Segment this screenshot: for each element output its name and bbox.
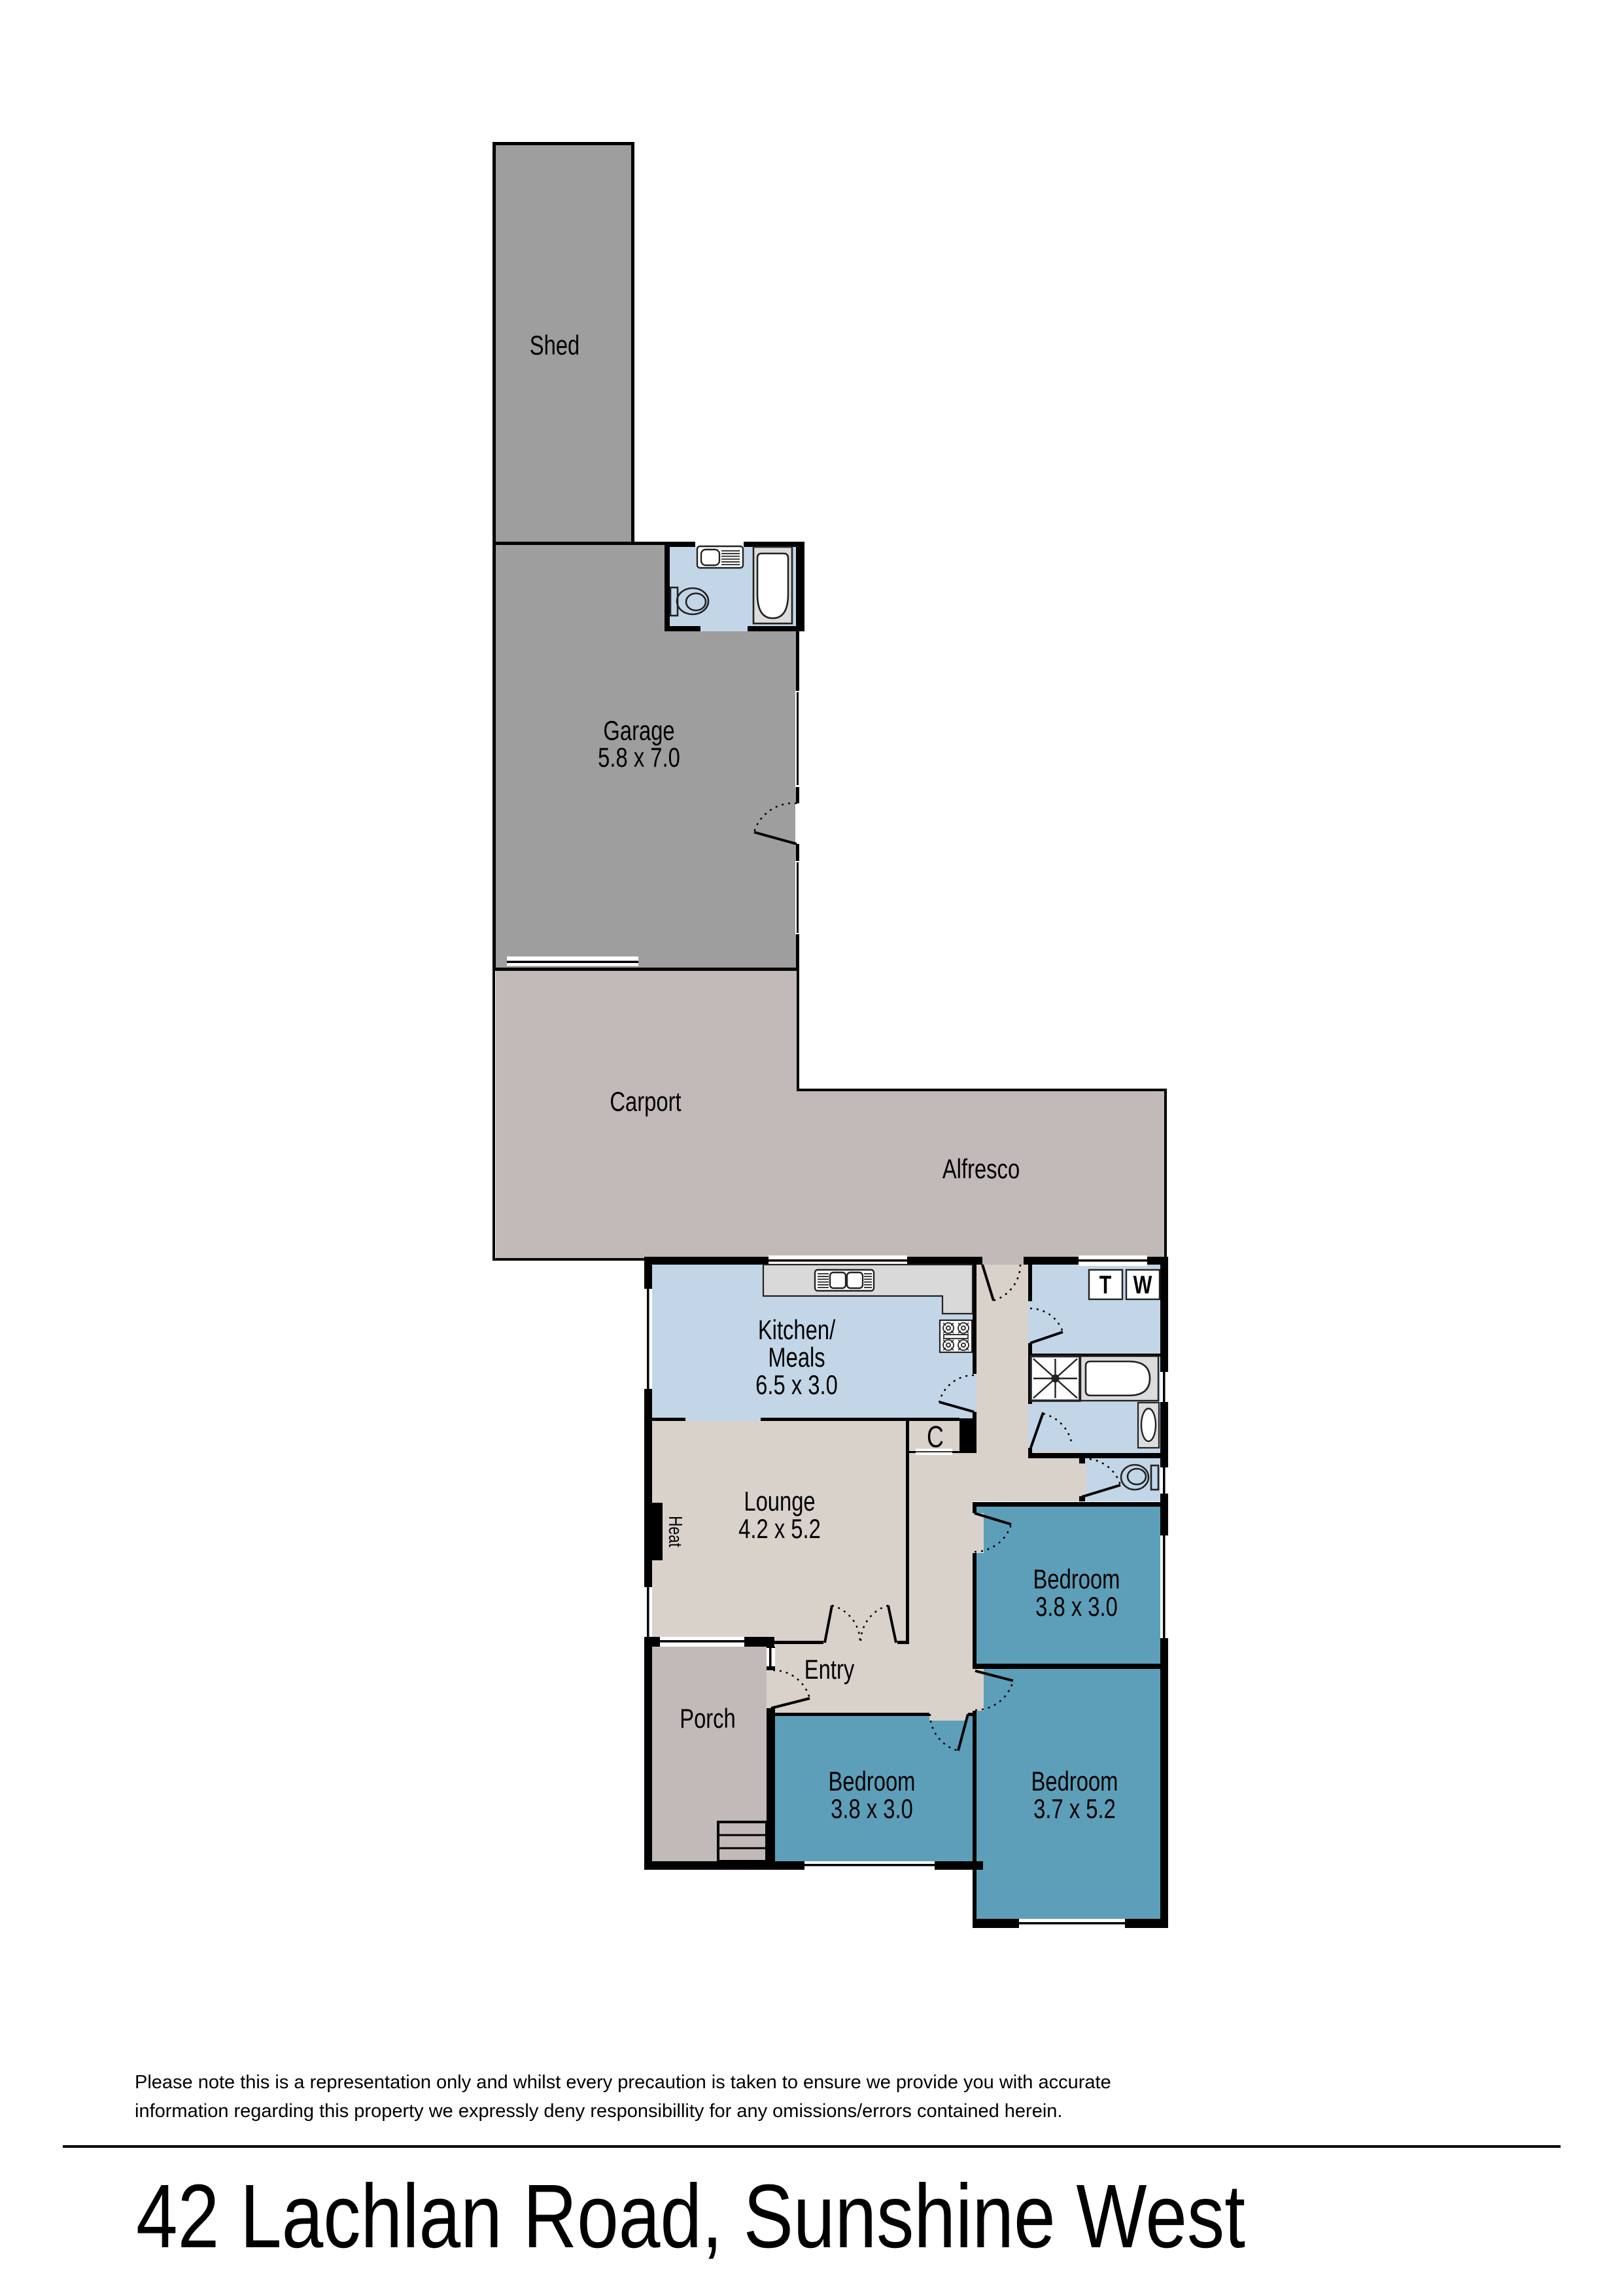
svg-text:Please note this is a represen: Please note this is a representation onl… xyxy=(135,2072,1111,2093)
svg-text:information regarding this pro: information regarding this property we e… xyxy=(135,2101,1062,2122)
svg-text:W: W xyxy=(1133,1270,1152,1299)
svg-text:4.2 x 5.2: 4.2 x 5.2 xyxy=(738,1513,821,1544)
svg-text:Garage: Garage xyxy=(603,715,674,746)
svg-text:Porch: Porch xyxy=(680,1703,736,1734)
svg-text:42 Lachlan Road, Sunshine West: 42 Lachlan Road, Sunshine West xyxy=(136,2165,1245,2267)
svg-text:5.8 x 7.0: 5.8 x 7.0 xyxy=(598,742,680,773)
svg-text:6.5 x 3.0: 6.5 x 3.0 xyxy=(755,1369,838,1400)
svg-text:Heat: Heat xyxy=(665,1516,686,1547)
svg-text:3.8 x 3.0: 3.8 x 3.0 xyxy=(831,1793,913,1824)
svg-text:Bedroom: Bedroom xyxy=(829,1766,916,1796)
svg-text:Shed: Shed xyxy=(530,330,580,360)
svg-text:Carport: Carport xyxy=(610,1086,682,1117)
svg-text:Alfresco: Alfresco xyxy=(942,1153,1020,1184)
svg-text:3.8 x 3.0: 3.8 x 3.0 xyxy=(1035,1591,1118,1622)
svg-text:Kitchen/: Kitchen/ xyxy=(758,1314,836,1345)
svg-text:C: C xyxy=(927,1420,944,1454)
svg-text:Meals: Meals xyxy=(768,1342,825,1373)
svg-text:3.7 x 5.2: 3.7 x 5.2 xyxy=(1033,1793,1116,1824)
svg-text:Entry: Entry xyxy=(804,1654,855,1685)
svg-text:Bedroom: Bedroom xyxy=(1033,1564,1120,1594)
svg-text:Bedroom: Bedroom xyxy=(1031,1766,1118,1796)
svg-text:T: T xyxy=(1099,1270,1112,1299)
svg-text:Lounge: Lounge xyxy=(744,1486,815,1516)
